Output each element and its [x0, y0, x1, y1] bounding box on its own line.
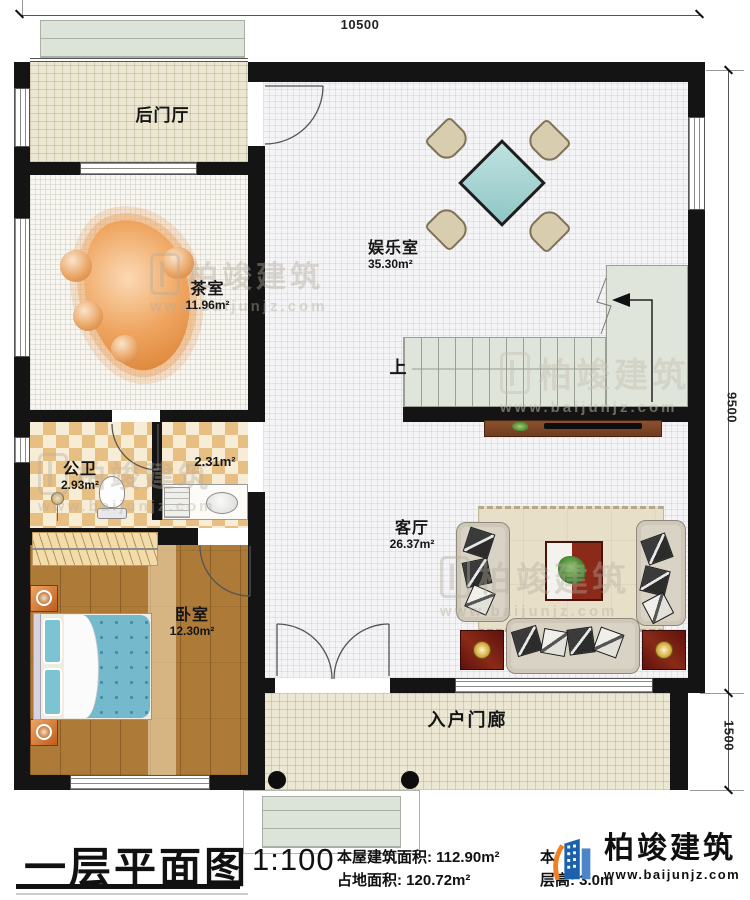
stair-break-line	[597, 278, 611, 334]
watermark-url: www.baijunjz.com	[38, 498, 215, 515]
room-area: 26.37m²	[372, 538, 452, 552]
watermark: 柏竣建筑 www.baijunjz.com	[500, 348, 690, 416]
brand-logo: 柏竣建筑 www.baijunjz.com	[548, 834, 740, 886]
watermark-logo-icon	[440, 556, 470, 598]
room-label-porch: 入户门廊	[400, 710, 535, 731]
stair-direction-arrow	[612, 293, 630, 307]
room-label-bathroom: 公卫 2.93m²	[45, 461, 115, 493]
room-label-bath-lobby: 2.31m²	[185, 455, 245, 470]
floor-plan-canvas: 10500 9500 1500	[0, 0, 750, 900]
room-name: 卧室	[152, 607, 232, 625]
stairs-up-label: 上	[386, 358, 410, 378]
room-label-living: 客厅 26.37m²	[372, 520, 452, 552]
room-area: 12.30m²	[152, 625, 232, 639]
entry-door-arc	[334, 624, 389, 679]
room-label-back-hall: 后门厅	[115, 106, 210, 126]
brand-name: 柏竣建筑	[604, 834, 740, 864]
room-name: 后门厅	[115, 106, 210, 126]
room-label-tea-room: 茶室 11.96m²	[165, 281, 250, 313]
room-label-entertainment: 娱乐室 35.30m²	[368, 240, 453, 272]
room-name: 入户门廊	[400, 710, 535, 731]
watermark-url: www.baijunjz.com	[500, 399, 690, 416]
area-line-2: 占地面积: 120.72m²	[337, 869, 470, 890]
watermark: 柏竣建筑 www.baijunjz.com	[440, 552, 630, 620]
brand-logo-icon	[548, 834, 600, 886]
entry-door-arc	[277, 624, 332, 679]
watermark-url: www.baijunjz.com	[440, 603, 630, 620]
room-name: 客厅	[372, 520, 452, 538]
room-area: 2.31m²	[185, 455, 245, 470]
room-name: 公卫	[45, 461, 115, 479]
watermark-logo-icon	[500, 352, 530, 394]
title-underline-2	[16, 893, 248, 895]
room-name: 娱乐室	[368, 240, 453, 258]
room-label-bedroom: 卧室 12.30m²	[152, 607, 232, 639]
plan-scale: 1:100	[252, 842, 335, 878]
brand-url: www.baijunjz.com	[604, 867, 740, 882]
back-door-arc	[265, 86, 323, 144]
room-area: 11.96m²	[165, 299, 250, 313]
area-line-1: 本屋建筑面积: 112.90m²	[337, 846, 500, 867]
room-name: 茶室	[165, 281, 250, 299]
watermark-text: 柏竣建筑	[478, 552, 630, 601]
title-underline	[16, 884, 240, 889]
bedroom-door-arc	[200, 546, 250, 596]
room-area: 2.93m²	[45, 479, 115, 493]
room-area: 35.30m²	[368, 258, 453, 272]
door-and-stair-overlay	[0, 0, 750, 900]
watermark-text: 柏竣建筑	[538, 348, 690, 397]
